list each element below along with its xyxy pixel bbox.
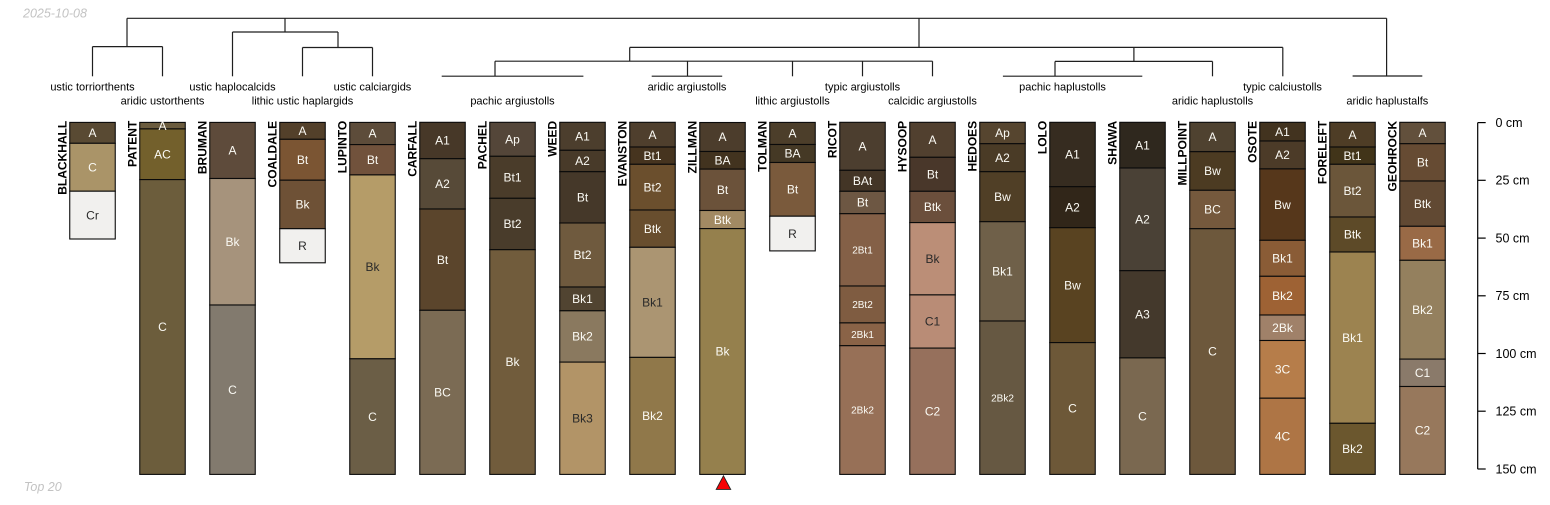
svg-text:Bt: Bt <box>1417 156 1429 170</box>
svg-text:pachic haplustolls: pachic haplustolls <box>1019 81 1106 93</box>
svg-text:2Bk2: 2Bk2 <box>851 406 874 417</box>
svg-text:Bt: Bt <box>927 168 939 182</box>
svg-text:HEDOES: HEDOES <box>966 121 980 172</box>
svg-text:100 cm: 100 cm <box>1496 347 1537 361</box>
svg-text:Btk: Btk <box>714 213 732 227</box>
svg-text:Bk1: Bk1 <box>572 292 593 306</box>
svg-text:Btk: Btk <box>1344 228 1362 242</box>
svg-text:Cr: Cr <box>86 208 99 222</box>
svg-text:Bk: Bk <box>715 345 730 359</box>
svg-text:BC: BC <box>1204 203 1221 217</box>
svg-text:Bk1: Bk1 <box>1342 331 1363 345</box>
svg-text:A1: A1 <box>435 134 450 148</box>
svg-text:C1: C1 <box>1415 366 1431 380</box>
svg-text:A: A <box>718 130 726 144</box>
svg-text:A: A <box>1208 130 1216 144</box>
svg-text:Bt: Bt <box>577 191 589 205</box>
svg-text:ustic torriorthents: ustic torriorthents <box>50 81 135 93</box>
svg-text:typic calciustolls: typic calciustolls <box>1243 81 1322 93</box>
svg-text:Bt: Bt <box>437 253 449 267</box>
svg-text:2Bk1: 2Bk1 <box>851 330 874 341</box>
svg-text:Bk: Bk <box>925 252 940 266</box>
svg-text:Bt1: Bt1 <box>503 171 521 185</box>
svg-text:BLACKHALL: BLACKHALL <box>56 121 70 195</box>
svg-text:A2: A2 <box>1065 200 1080 214</box>
svg-text:Bk: Bk <box>225 235 240 249</box>
svg-text:ZILLMAN: ZILLMAN <box>686 121 700 174</box>
svg-text:PATENT: PATENT <box>126 120 140 167</box>
svg-text:A: A <box>788 127 796 141</box>
svg-text:A: A <box>928 133 936 147</box>
svg-text:Bk2: Bk2 <box>1342 442 1363 456</box>
svg-text:BAt: BAt <box>853 174 873 188</box>
svg-text:Bt1: Bt1 <box>643 149 661 163</box>
svg-text:A: A <box>1418 126 1426 140</box>
svg-text:MILLPOINT: MILLPOINT <box>1176 120 1190 185</box>
svg-text:A2: A2 <box>575 154 590 168</box>
svg-text:A: A <box>228 144 236 158</box>
svg-text:Btk: Btk <box>924 200 942 214</box>
svg-text:Bt: Bt <box>367 153 379 167</box>
svg-text:aridic haplustolls: aridic haplustolls <box>1172 96 1254 108</box>
svg-text:WEED: WEED <box>546 120 560 156</box>
svg-text:PACHEL: PACHEL <box>476 121 490 169</box>
svg-text:2Bt1: 2Bt1 <box>852 245 873 256</box>
svg-text:C: C <box>368 410 377 424</box>
svg-text:Bt1: Bt1 <box>1343 149 1361 163</box>
svg-text:Bk1: Bk1 <box>642 296 663 310</box>
svg-text:lithic argiustolls: lithic argiustolls <box>755 96 830 108</box>
svg-text:2Bt2: 2Bt2 <box>852 300 873 311</box>
svg-text:A2: A2 <box>1135 213 1150 227</box>
svg-text:A: A <box>858 140 866 154</box>
svg-text:Bk1: Bk1 <box>992 265 1013 279</box>
svg-text:Bk2: Bk2 <box>1412 303 1433 317</box>
svg-text:lithic ustic haplargids: lithic ustic haplargids <box>252 96 354 108</box>
svg-text:Btk: Btk <box>644 222 662 236</box>
svg-text:BRUMAN: BRUMAN <box>196 121 210 174</box>
svg-text:75 cm: 75 cm <box>1496 289 1530 303</box>
svg-text:Bt2: Bt2 <box>503 217 521 231</box>
svg-text:0 cm: 0 cm <box>1496 116 1523 130</box>
svg-text:Bk1: Bk1 <box>1272 252 1293 266</box>
svg-text:Bk: Bk <box>505 355 520 369</box>
svg-text:LUPINTO: LUPINTO <box>336 121 350 173</box>
svg-text:Bt2: Bt2 <box>1343 184 1361 198</box>
svg-text:GEOHROCK: GEOHROCK <box>1386 120 1400 191</box>
svg-text:4C: 4C <box>1275 430 1291 444</box>
svg-text:C: C <box>1208 345 1217 359</box>
svg-text:150 cm: 150 cm <box>1496 462 1537 476</box>
svg-text:C: C <box>158 320 167 334</box>
svg-text:Bt: Bt <box>787 183 799 197</box>
svg-text:A: A <box>158 119 166 133</box>
svg-text:2025-10-08: 2025-10-08 <box>22 6 87 20</box>
svg-text:25 cm: 25 cm <box>1496 174 1530 188</box>
svg-text:Bk2: Bk2 <box>642 409 663 423</box>
svg-text:LOLO: LOLO <box>1036 121 1050 154</box>
svg-text:Bt: Bt <box>297 153 309 167</box>
svg-text:CARFALL: CARFALL <box>406 121 420 177</box>
svg-text:Ap: Ap <box>505 133 520 147</box>
svg-text:RICOT: RICOT <box>826 120 840 158</box>
svg-text:Bk: Bk <box>295 198 310 212</box>
svg-text:Bt2: Bt2 <box>643 180 661 194</box>
svg-text:Bt2: Bt2 <box>573 248 591 262</box>
svg-text:R: R <box>298 239 307 253</box>
svg-text:125 cm: 125 cm <box>1496 405 1537 419</box>
svg-text:R: R <box>788 227 797 241</box>
svg-text:aridic haplustalfs: aridic haplustalfs <box>1346 96 1428 108</box>
svg-text:50 cm: 50 cm <box>1496 232 1530 246</box>
svg-text:BC: BC <box>434 386 451 400</box>
svg-text:Bw: Bw <box>1274 198 1291 212</box>
svg-text:A3: A3 <box>1135 308 1150 322</box>
svg-text:C: C <box>88 160 97 174</box>
svg-text:C1: C1 <box>925 315 941 329</box>
svg-text:BA: BA <box>714 154 730 168</box>
svg-text:Bk2: Bk2 <box>572 330 593 344</box>
svg-text:Bw: Bw <box>1204 164 1221 178</box>
svg-text:Bk1: Bk1 <box>1412 237 1433 251</box>
svg-text:A: A <box>368 127 376 141</box>
svg-text:BA: BA <box>784 147 800 161</box>
svg-text:EVANSTON: EVANSTON <box>616 121 630 187</box>
svg-text:Btk: Btk <box>1414 197 1432 211</box>
svg-text:OSOTE: OSOTE <box>1246 121 1260 163</box>
svg-text:C2: C2 <box>1415 424 1431 438</box>
svg-text:Bk: Bk <box>365 260 380 274</box>
svg-text:A1: A1 <box>575 130 590 144</box>
svg-text:A: A <box>648 128 656 142</box>
svg-text:A2: A2 <box>435 177 450 191</box>
svg-text:ustic calciargids: ustic calciargids <box>334 81 412 93</box>
svg-text:C: C <box>1138 409 1147 423</box>
svg-text:Ap: Ap <box>995 126 1010 140</box>
svg-text:C2: C2 <box>925 404 941 418</box>
svg-text:FORELEFT: FORELEFT <box>1316 120 1330 184</box>
svg-text:HYSOOP: HYSOOP <box>896 121 910 172</box>
svg-text:A1: A1 <box>1135 138 1150 152</box>
svg-text:2Bk2: 2Bk2 <box>991 393 1014 404</box>
svg-text:A: A <box>88 126 96 140</box>
svg-text:A2: A2 <box>995 151 1010 165</box>
svg-text:SHAWA: SHAWA <box>1106 120 1120 164</box>
svg-text:pachic argiustolls: pachic argiustolls <box>470 96 555 108</box>
svg-text:Bw: Bw <box>1064 278 1081 292</box>
svg-text:TOLMAN: TOLMAN <box>756 121 770 172</box>
svg-text:Bk2: Bk2 <box>1272 289 1293 303</box>
svg-text:typic argiustolls: typic argiustolls <box>825 81 901 93</box>
svg-text:A: A <box>1348 128 1356 142</box>
svg-text:A: A <box>298 124 306 138</box>
svg-text:A1: A1 <box>1275 125 1290 139</box>
svg-text:aridic ustorthents: aridic ustorthents <box>121 96 205 108</box>
svg-text:aridic argiustolls: aridic argiustolls <box>648 81 727 93</box>
svg-text:Bt: Bt <box>717 183 729 197</box>
svg-text:calcidic argiustolls: calcidic argiustolls <box>888 96 977 108</box>
svg-text:C: C <box>228 383 237 397</box>
svg-text:2Bk: 2Bk <box>1272 321 1294 335</box>
svg-text:C: C <box>1068 402 1077 416</box>
svg-text:Bw: Bw <box>994 190 1011 204</box>
svg-text:Bt: Bt <box>857 196 869 210</box>
svg-text:Bk3: Bk3 <box>572 411 593 425</box>
svg-text:AC: AC <box>154 147 171 161</box>
svg-text:ustic haplocalcids: ustic haplocalcids <box>189 81 276 93</box>
svg-text:COALDALE: COALDALE <box>266 121 280 188</box>
svg-text:A1: A1 <box>1065 148 1080 162</box>
svg-text:Top 20: Top 20 <box>24 480 62 494</box>
svg-text:3C: 3C <box>1275 363 1291 377</box>
svg-text:A2: A2 <box>1275 148 1290 162</box>
